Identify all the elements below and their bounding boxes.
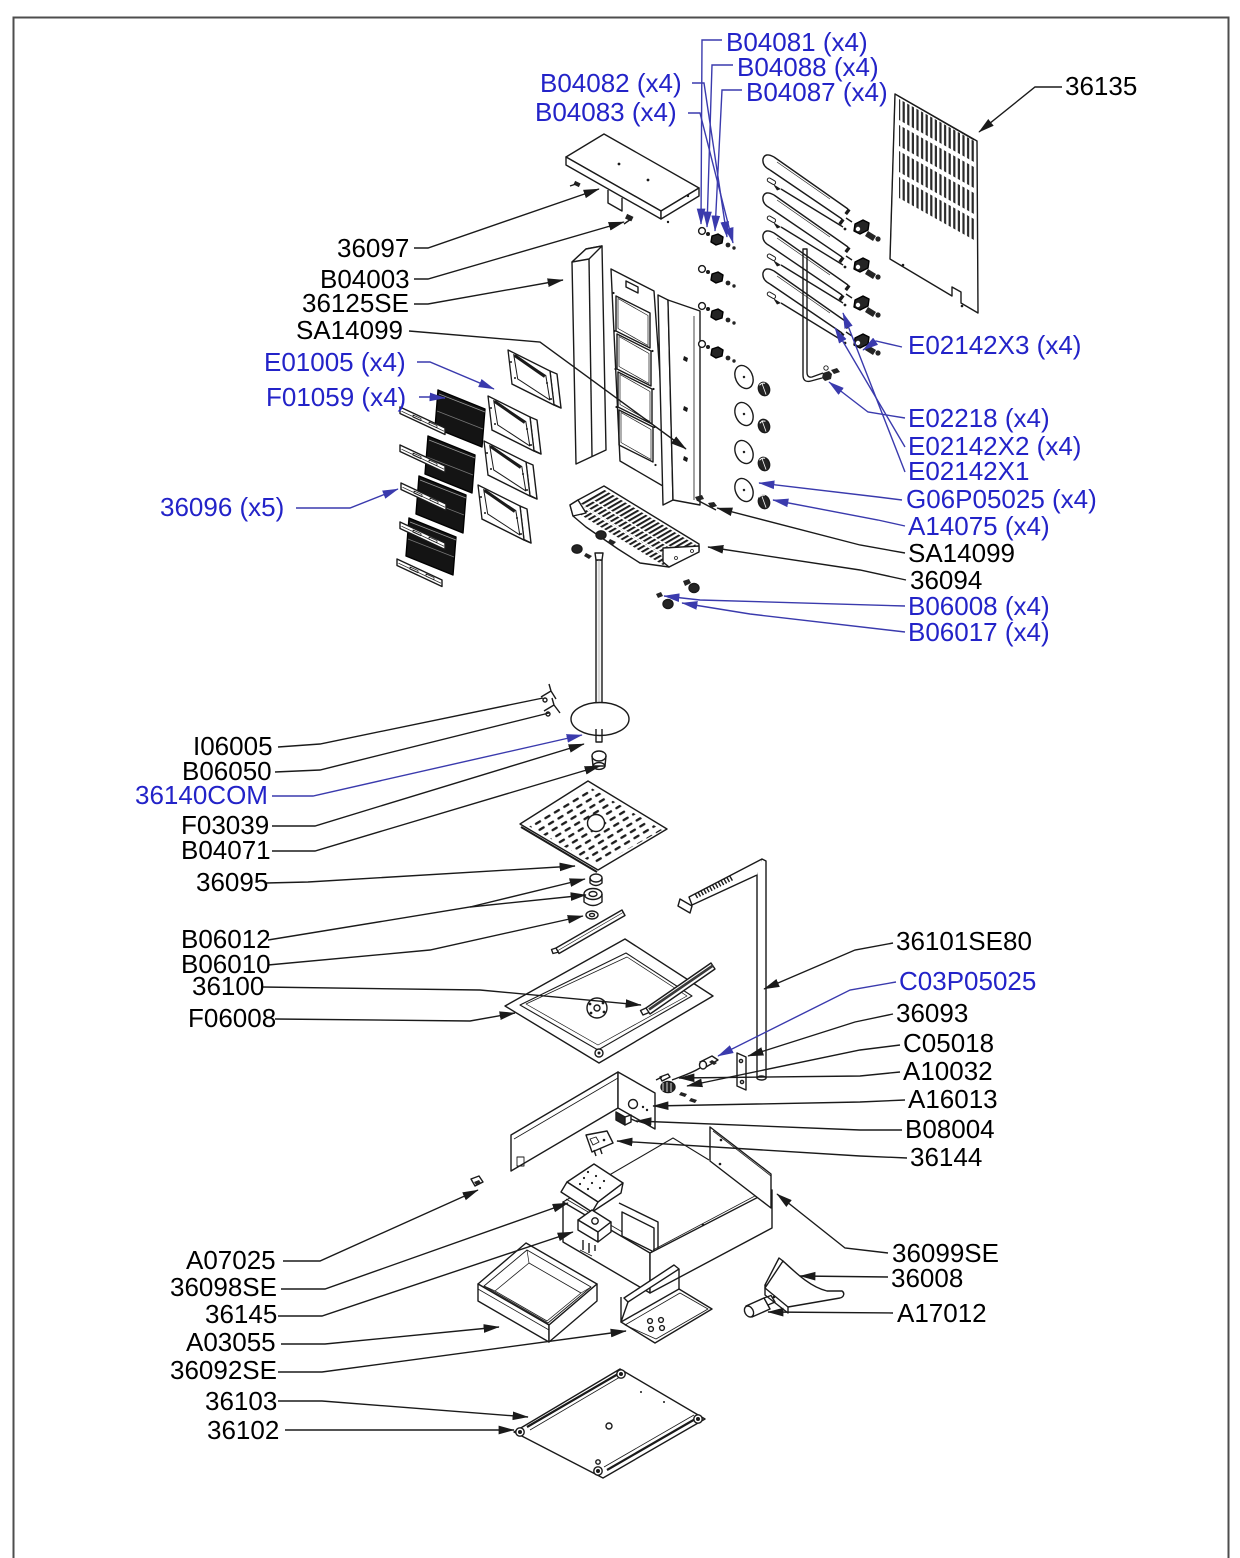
svg-text:36093: 36093 [896, 998, 968, 1028]
svg-text:F06008: F06008 [188, 1003, 276, 1033]
svg-text:E02142X1: E02142X1 [908, 456, 1029, 486]
svg-text:A10032: A10032 [903, 1056, 993, 1086]
svg-text:A14075 (x4): A14075 (x4) [908, 511, 1050, 541]
svg-text:E01005 (x4): E01005 (x4) [264, 347, 406, 377]
svg-text:F01059 (x4): F01059 (x4) [266, 382, 406, 412]
svg-text:36095: 36095 [196, 867, 268, 897]
svg-text:36102: 36102 [207, 1415, 279, 1445]
svg-text:C05018: C05018 [903, 1028, 994, 1058]
svg-text:G06P05025 (x4): G06P05025 (x4) [906, 484, 1097, 514]
svg-text:B04082 (x4): B04082 (x4) [540, 68, 682, 98]
svg-text:36125SE: 36125SE [302, 288, 409, 318]
svg-text:36103: 36103 [205, 1386, 277, 1416]
svg-text:E02142X3 (x4): E02142X3 (x4) [908, 330, 1081, 360]
svg-text:36096 (x5): 36096 (x5) [160, 492, 284, 522]
svg-text:A17012: A17012 [897, 1298, 987, 1328]
svg-text:B04087 (x4): B04087 (x4) [746, 77, 888, 107]
svg-text:B04083 (x4): B04083 (x4) [535, 97, 677, 127]
svg-text:36092SE: 36092SE [170, 1355, 277, 1385]
svg-text:SA14099: SA14099 [296, 315, 403, 345]
svg-text:A16013: A16013 [908, 1084, 998, 1114]
svg-text:A07025: A07025 [186, 1245, 276, 1275]
svg-text:36100: 36100 [192, 971, 264, 1001]
svg-text:36098SE: 36098SE [170, 1272, 277, 1302]
svg-text:36145: 36145 [205, 1299, 277, 1329]
svg-text:36140COM: 36140COM [135, 780, 268, 810]
svg-text:36144: 36144 [910, 1142, 982, 1172]
svg-text:B08004: B08004 [905, 1114, 995, 1144]
svg-text:36135: 36135 [1065, 71, 1137, 101]
svg-text:C03P05025: C03P05025 [899, 966, 1036, 996]
svg-text:A03055: A03055 [186, 1327, 276, 1357]
svg-text:36008: 36008 [891, 1263, 963, 1293]
svg-text:E02218 (x4): E02218 (x4) [908, 403, 1050, 433]
svg-text:B06017 (x4): B06017 (x4) [908, 617, 1050, 647]
svg-text:B04071: B04071 [181, 835, 271, 865]
svg-text:36101SE80: 36101SE80 [896, 926, 1032, 956]
svg-text:36097: 36097 [337, 233, 409, 263]
svg-text:SA14099: SA14099 [908, 538, 1015, 568]
